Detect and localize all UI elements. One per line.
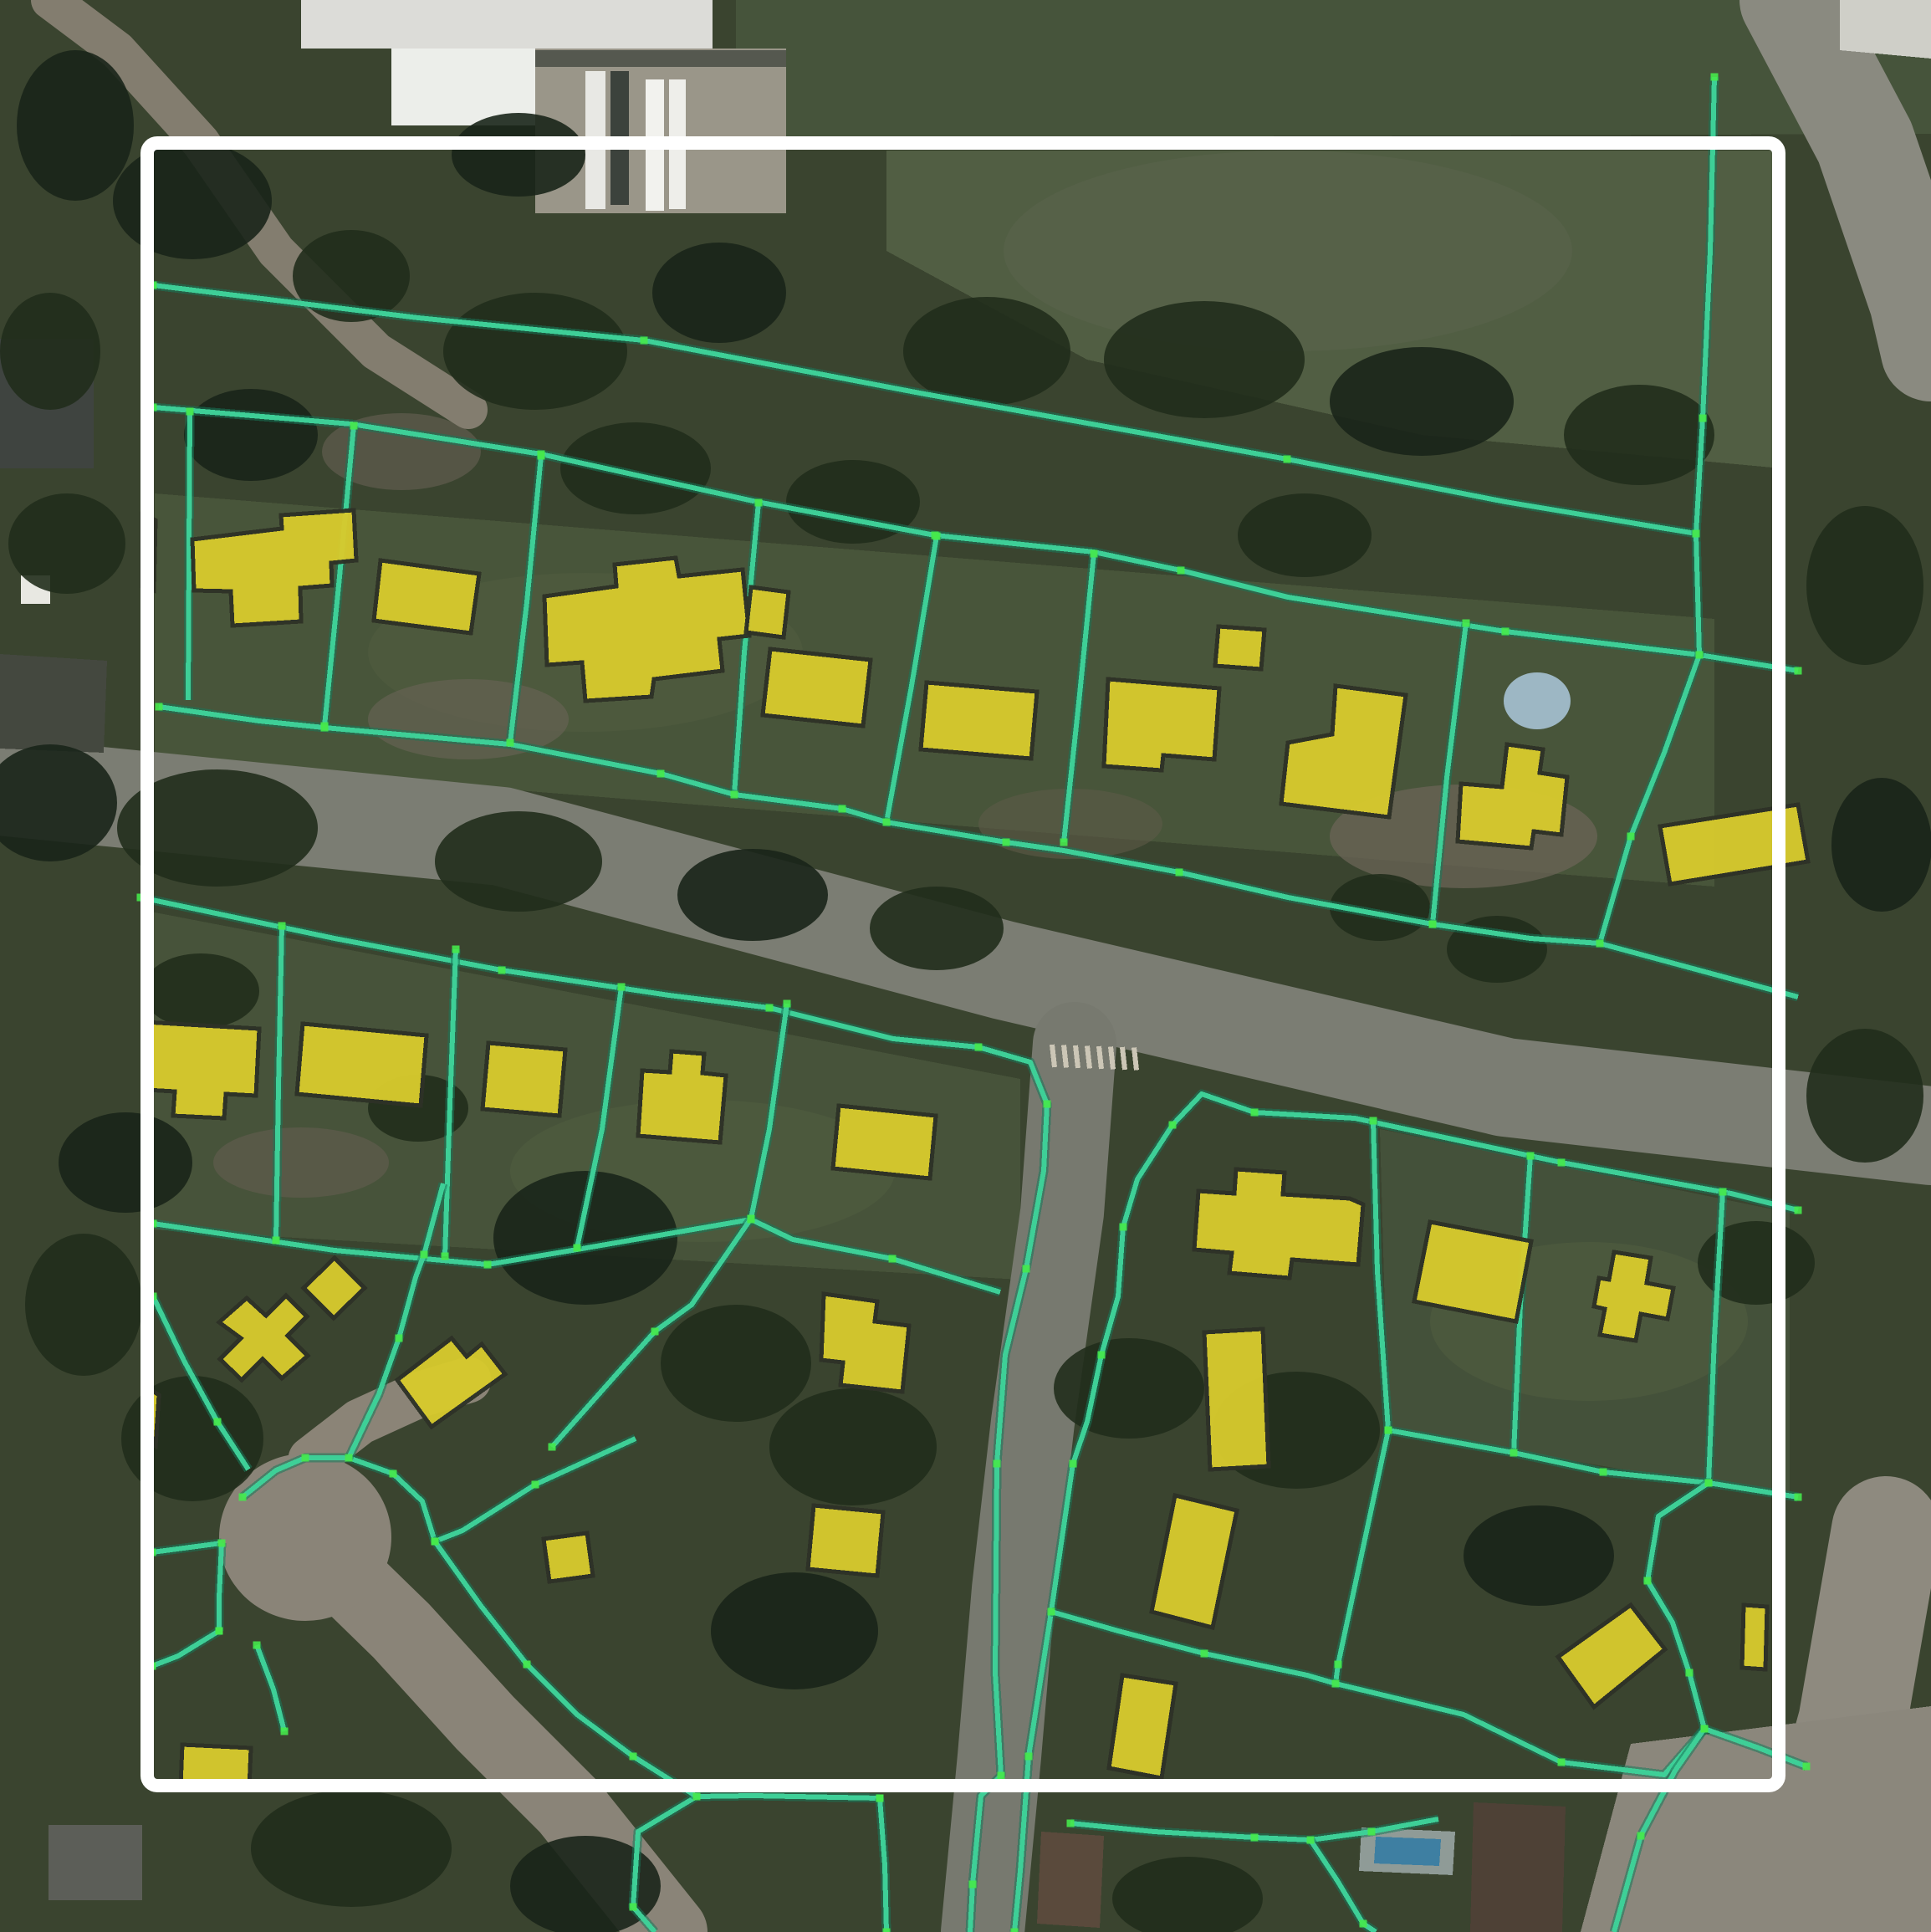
vertex-marker[interactable] (839, 805, 846, 813)
vertex-marker[interactable] (239, 1494, 247, 1501)
vertex-marker[interactable] (1558, 1759, 1566, 1766)
backyard-pool-rect (1374, 1837, 1441, 1866)
vertex-marker[interactable] (1644, 1577, 1652, 1585)
vertex-marker[interactable] (1335, 1661, 1342, 1669)
vertex-marker[interactable] (345, 1454, 353, 1462)
house-roof-bottom (1037, 1832, 1104, 1928)
vertex-marker[interactable] (390, 1470, 397, 1478)
tree-canopy (435, 811, 602, 912)
vertex-marker[interactable] (1803, 1763, 1811, 1771)
vertex-marker[interactable] (1385, 1427, 1392, 1434)
vertex-marker[interactable] (1701, 1725, 1709, 1733)
building-footprint-b06[interactable] (921, 682, 1037, 759)
vertex-marker[interactable] (442, 1253, 449, 1260)
vertex-marker[interactable] (1098, 1352, 1106, 1359)
vertex-marker[interactable] (1120, 1224, 1127, 1231)
vertex-marker[interactable] (1067, 1820, 1075, 1827)
building-footprint-b02[interactable] (374, 560, 479, 633)
tree-canopy (0, 293, 100, 410)
vertex-marker[interactable] (933, 533, 941, 540)
vertex-marker[interactable] (1044, 1101, 1051, 1108)
building-footprint-b13[interactable] (297, 1024, 427, 1106)
building-footprint-b05[interactable] (763, 649, 871, 726)
vertex-marker[interactable] (1251, 1109, 1259, 1117)
vertex-marker[interactable] (731, 791, 738, 799)
vertex-marker[interactable] (1686, 1669, 1693, 1677)
vertex-marker[interactable] (1060, 839, 1068, 846)
vertex-marker[interactable] (253, 1642, 261, 1649)
cul-de-sac-arc-southwest[interactable] (219, 1543, 222, 1631)
tree-canopy (677, 849, 828, 941)
vertex-marker[interactable] (218, 1540, 226, 1547)
tree-canopy (142, 953, 259, 1029)
vertex-marker[interactable] (1023, 1265, 1030, 1273)
vertex-marker[interactable] (1795, 667, 1802, 675)
vertex-marker[interactable] (549, 1444, 556, 1451)
tree-canopy (870, 887, 1004, 970)
vertex-marker[interactable] (1003, 839, 1010, 846)
vertex-marker[interactable] (641, 337, 648, 345)
vertex-marker[interactable] (452, 946, 460, 953)
lot-divider[interactable] (188, 411, 190, 700)
vertex-marker[interactable] (1558, 1159, 1566, 1167)
vertex-marker[interactable] (1284, 456, 1291, 463)
building-footprint-b21[interactable] (1204, 1329, 1269, 1469)
building-footprint-b31[interactable] (544, 1533, 593, 1582)
vertex-marker[interactable] (1696, 652, 1704, 659)
tree-canopy (184, 389, 318, 481)
vertex-marker[interactable] (1510, 1449, 1518, 1457)
aerial-map-viewport[interactable] (0, 0, 1931, 1932)
vertex-marker[interactable] (302, 1454, 309, 1462)
vertex-marker[interactable] (1627, 833, 1635, 841)
vertex-marker[interactable] (1370, 1117, 1377, 1125)
vertex-marker[interactable] (432, 1538, 439, 1546)
vertex-marker[interactable] (498, 967, 506, 974)
vertex-marker[interactable] (1070, 1460, 1077, 1468)
tree-canopy (1464, 1505, 1614, 1606)
vertex-marker[interactable] (532, 1481, 539, 1489)
vertex-marker[interactable] (1795, 1207, 1802, 1214)
vertex-marker[interactable] (1699, 415, 1707, 422)
vertex-marker[interactable] (1693, 530, 1700, 538)
ground-patch (213, 1127, 389, 1198)
tree-canopy (452, 113, 585, 197)
building-footprint-b04[interactable] (746, 587, 789, 637)
crosswalk-bar (1075, 1045, 1078, 1068)
light-roof-top-right (1840, 0, 1931, 59)
tree-canopy (661, 1305, 811, 1422)
house-roof-outside-left (0, 654, 107, 753)
vertex-marker[interactable] (1360, 1920, 1367, 1928)
vertex-marker[interactable] (998, 1772, 1005, 1780)
vertex-marker[interactable] (1502, 628, 1510, 636)
vertex-marker[interactable] (1201, 1650, 1208, 1658)
crosswalk-bar (1111, 1047, 1113, 1070)
vertex-marker[interactable] (618, 984, 626, 991)
vertex-marker[interactable] (1719, 1188, 1727, 1196)
vertex-marker[interactable] (630, 1753, 637, 1761)
tree-canopy (1831, 778, 1931, 912)
tree-canopy (17, 50, 134, 201)
tree-canopy (8, 493, 125, 594)
tree-canopy (1806, 506, 1923, 665)
vertex-marker[interactable] (1251, 1834, 1259, 1842)
building-footprint-b16[interactable] (833, 1106, 936, 1178)
tree-canopy (25, 1234, 142, 1376)
tree-canopy (769, 1388, 937, 1505)
vertex-marker[interactable] (883, 819, 891, 826)
vertex-marker[interactable] (1307, 1837, 1315, 1844)
vertex-marker[interactable] (657, 770, 665, 778)
vertex-marker[interactable] (1600, 1469, 1607, 1476)
vertex-marker[interactable] (1025, 1753, 1033, 1761)
building-footprint-b25[interactable] (1742, 1605, 1767, 1669)
vertex-marker[interactable] (1178, 567, 1185, 575)
crosswalk-bar (1099, 1046, 1101, 1069)
vertex-marker[interactable] (574, 1245, 581, 1252)
shed-roof-bottom-left (49, 1825, 142, 1900)
vertex-marker[interactable] (1169, 1122, 1177, 1129)
vertex-marker[interactable] (1711, 74, 1719, 81)
crosswalk-bar (1122, 1047, 1125, 1070)
crosswalk-bar (1087, 1046, 1090, 1069)
building-footprint-b08[interactable] (1215, 626, 1264, 669)
vertex-marker[interactable] (396, 1335, 403, 1342)
vertex-marker[interactable] (538, 452, 545, 460)
tree-canopy (1564, 385, 1714, 485)
vertex-marker[interactable] (1332, 1680, 1340, 1688)
vertex-marker[interactable] (876, 1795, 884, 1802)
vertex-marker[interactable] (1048, 1608, 1055, 1616)
vertex-marker[interactable] (969, 1881, 977, 1889)
vertex-marker[interactable] (889, 1255, 897, 1263)
building-footprint-b23[interactable] (1109, 1675, 1176, 1778)
vertex-marker[interactable] (186, 408, 194, 416)
vertex-marker[interactable] (693, 1793, 701, 1801)
vertex-marker[interactable] (1368, 1828, 1376, 1836)
tree-canopy (903, 297, 1070, 406)
building-footprint-b19[interactable] (1414, 1222, 1531, 1321)
vertex-marker[interactable] (156, 703, 163, 711)
vertex-marker[interactable] (216, 1628, 223, 1635)
vertex-marker[interactable] (278, 923, 286, 930)
vertex-marker[interactable] (651, 1328, 659, 1336)
building-footprint-b14[interactable] (483, 1043, 565, 1116)
crosswalk-bar (1064, 1045, 1066, 1068)
vertex-marker[interactable] (994, 1460, 1001, 1468)
tree-canopy (1806, 1029, 1923, 1163)
tree-canopy (652, 243, 786, 343)
vertex-marker[interactable] (507, 739, 514, 747)
crosswalk-bar (1134, 1048, 1137, 1071)
vertex-marker[interactable] (1429, 921, 1437, 928)
tree-canopy (1054, 1338, 1204, 1439)
tree-canopy (59, 1112, 192, 1213)
vertex-marker[interactable] (321, 724, 329, 732)
vertex-marker[interactable] (766, 1004, 774, 1012)
tree-canopy (560, 422, 711, 514)
vertex-marker[interactable] (1637, 1832, 1645, 1840)
tree-canopy (1104, 301, 1305, 418)
vertex-marker[interactable] (214, 1418, 222, 1426)
vertex-marker[interactable] (975, 1044, 983, 1051)
building-footprint-b07[interactable] (1104, 679, 1219, 770)
ground-patch (1004, 151, 1572, 351)
vertex-marker[interactable] (1091, 550, 1098, 558)
vertex-marker[interactable] (273, 1237, 280, 1245)
vertex-marker[interactable] (1527, 1153, 1535, 1160)
aerial-map-canvas[interactable] (0, 0, 1931, 1932)
tree-canopy (1238, 493, 1372, 577)
vertex-marker[interactable] (350, 422, 358, 430)
crosswalk-bar (1052, 1045, 1055, 1067)
vertex-marker[interactable] (524, 1661, 531, 1669)
tree-canopy (443, 293, 627, 410)
vertex-marker[interactable] (484, 1261, 492, 1269)
vertex-marker[interactable] (784, 1000, 791, 1008)
tree-canopy (711, 1572, 878, 1689)
vertex-marker[interactable] (630, 1904, 637, 1911)
tree-canopy (251, 1790, 452, 1907)
dock-door-strip (535, 50, 786, 67)
backyard-pool-round (1504, 672, 1571, 729)
vertex-marker[interactable] (281, 1728, 289, 1735)
warehouse-roof (301, 0, 713, 49)
vertex-marker[interactable] (755, 499, 763, 507)
vertex-marker[interactable] (1705, 1480, 1713, 1487)
vertex-marker[interactable] (1463, 620, 1470, 627)
vertex-marker[interactable] (421, 1251, 428, 1259)
house-roof-bottom (1470, 1802, 1566, 1932)
tree-canopy (1330, 347, 1514, 456)
vertex-marker[interactable] (1176, 869, 1183, 877)
vertex-marker[interactable] (883, 1929, 891, 1932)
vertex-marker[interactable] (748, 1215, 755, 1223)
building-footprint-b32[interactable] (808, 1505, 883, 1576)
tree-canopy (113, 142, 272, 259)
vertex-marker[interactable] (1596, 940, 1604, 948)
vertex-marker[interactable] (1795, 1494, 1802, 1501)
vertex-marker[interactable] (1011, 1929, 1019, 1932)
